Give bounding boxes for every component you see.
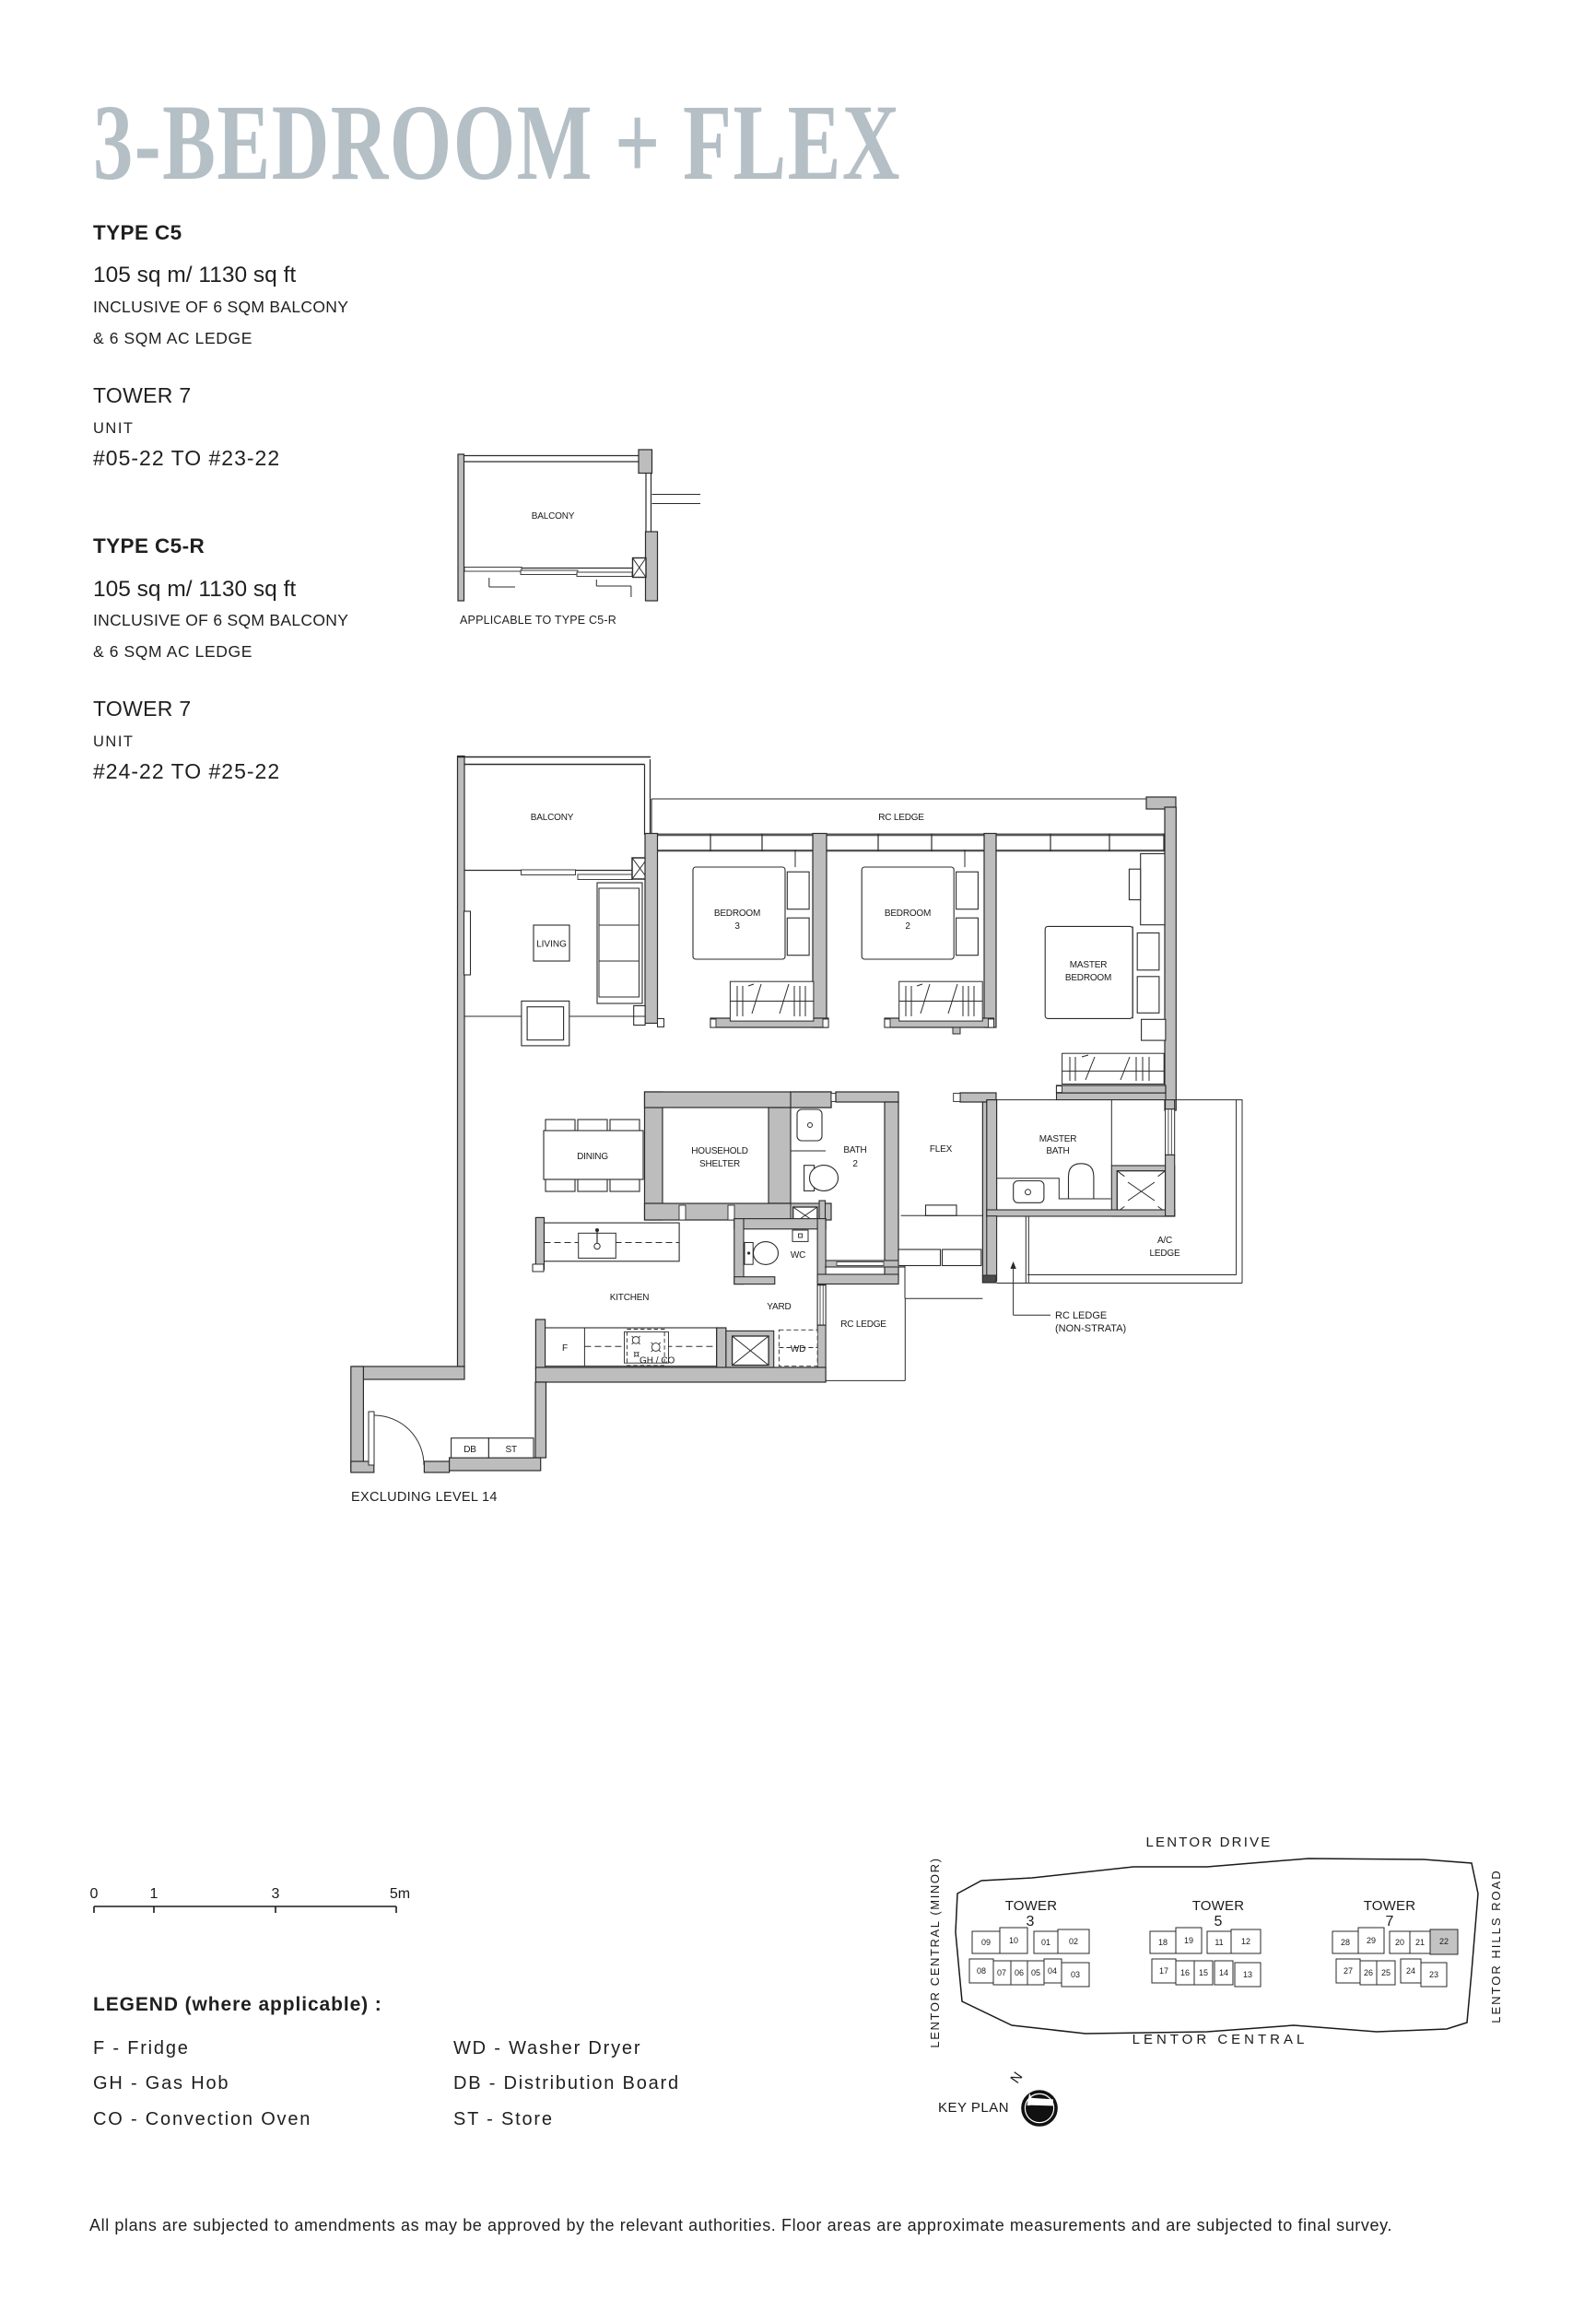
svg-text:3-BEDROOM + FLEX: 3-BEDROOM + FLEX (93, 82, 901, 203)
